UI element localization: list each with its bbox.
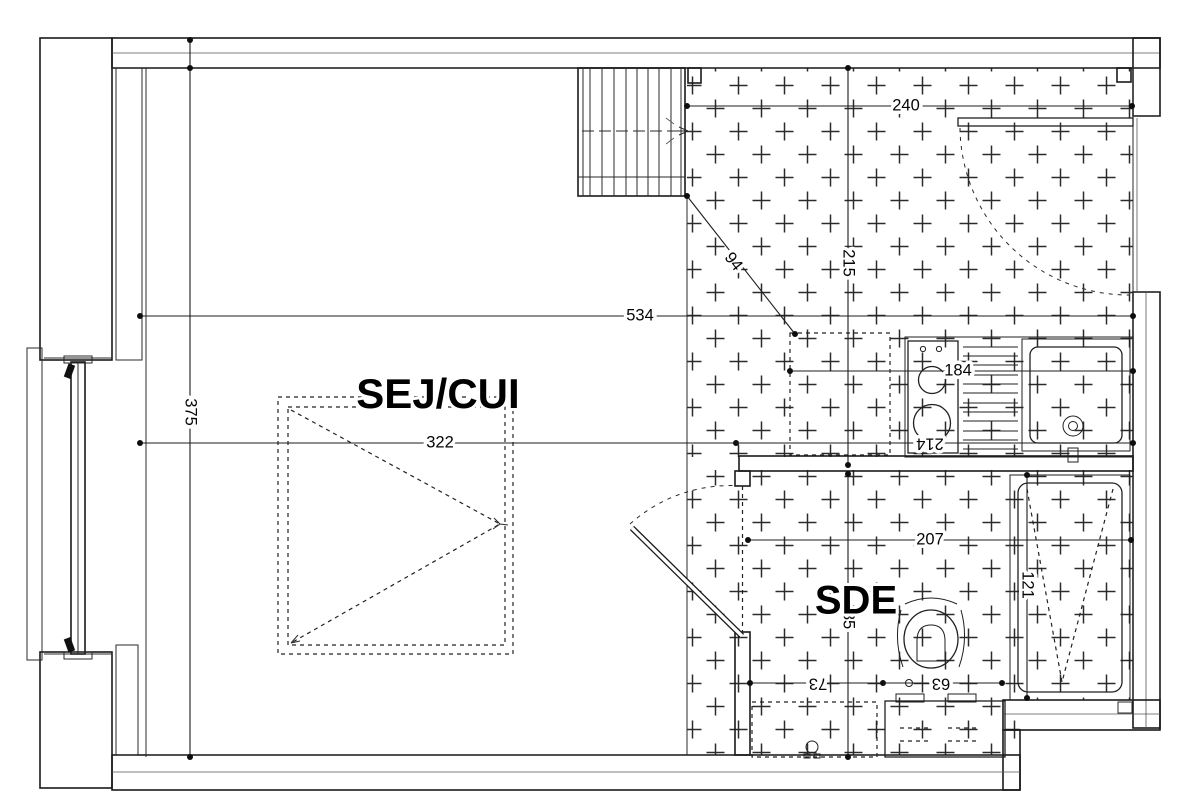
dim-label-322: 322 xyxy=(426,433,454,451)
dim-label-375: 375 xyxy=(182,398,200,426)
dim-label-63: 63 xyxy=(932,675,950,693)
window-tick-top-icon xyxy=(64,363,75,379)
window-tick-bottom-icon xyxy=(64,637,75,653)
party-wall-lower xyxy=(40,652,112,788)
post-shower-corner xyxy=(1118,702,1132,713)
dim-label-184: 184 xyxy=(944,361,972,379)
sofa-bed-arrow-icon xyxy=(493,518,508,529)
dim-label-215: 215 xyxy=(840,249,858,277)
lining-left-lower xyxy=(116,645,138,755)
dim-label-121: 121 xyxy=(1019,571,1037,599)
partition-sde-north xyxy=(739,456,1133,471)
tiled-floor-sde xyxy=(687,470,1133,755)
staircase xyxy=(578,68,688,196)
dim-label-207: 207 xyxy=(916,530,944,548)
sofa-bed-arrow2-icon xyxy=(291,635,300,643)
room-label-sej-cui: SEJ/CUI xyxy=(356,370,519,417)
dim-label-534: 534 xyxy=(626,306,654,324)
floor-plan: 240 534 215 94 375 322 xyxy=(0,0,1203,800)
party-wall-upper xyxy=(40,38,112,360)
wall-right-upper xyxy=(1133,38,1160,116)
party-wall-reveal xyxy=(27,348,42,660)
wall-shower-south xyxy=(1003,700,1160,730)
dim-label-214: 214 xyxy=(916,435,944,453)
floor-plan-drawing: 240 534 215 94 375 322 xyxy=(0,0,1203,800)
tiled-floor xyxy=(687,68,1133,755)
sofa-bed-unfold-chevron xyxy=(291,410,500,643)
dim-label-73: 73 xyxy=(809,675,827,693)
window xyxy=(44,356,112,659)
dimension-living-width: 322 xyxy=(137,433,739,451)
wall-bottom xyxy=(112,755,1020,790)
sofa-bed-reservation xyxy=(278,397,513,654)
stair-direction-arrow-icon xyxy=(676,127,688,135)
dimension-interior-depth: 375 xyxy=(182,37,200,760)
sofa-bed-outer xyxy=(278,397,513,654)
room-label-sde: SDE xyxy=(815,579,897,623)
dim-label-240: 240 xyxy=(892,96,920,114)
wall-right-lower xyxy=(1133,292,1160,728)
